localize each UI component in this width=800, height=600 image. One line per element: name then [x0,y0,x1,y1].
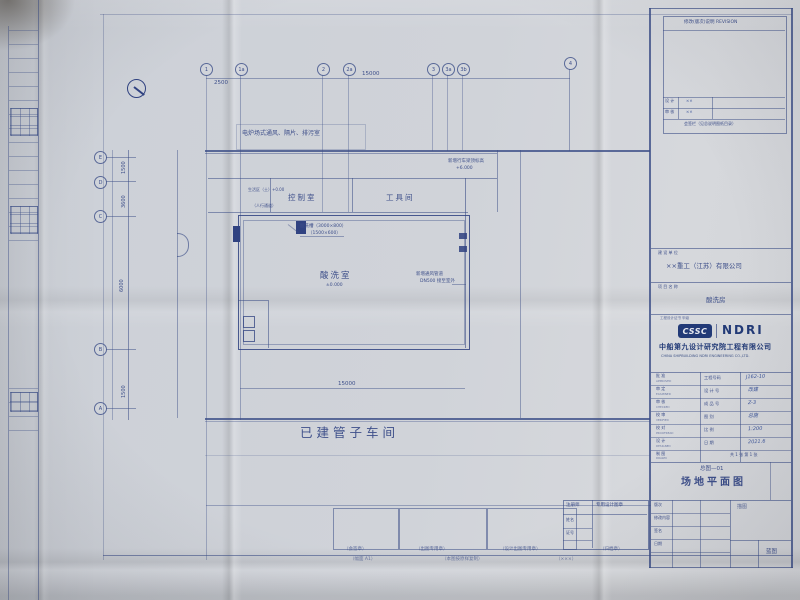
sign-row2-en: EXAMINED [656,393,671,396]
field-row6-label: 日 期 [704,441,714,446]
small-note-1: 生活区（土）+0.00 [248,188,284,193]
grid-line-3 [432,75,433,151]
field-row3-value: Z-3 [748,401,756,407]
left-panel-table-2 [10,206,38,234]
ndri-brand-text: NDRI [722,324,764,338]
corner-cell-vline [758,540,759,568]
revision-table-header: 修改(版次)说明 REVISION [684,20,737,25]
field-row1-value: J162-10 [746,375,765,381]
project-value: 酸洗房 [706,297,726,304]
revision-header-line [663,30,785,31]
project-label: 项 目 名 称 [658,285,678,290]
tank-leader-line [300,236,344,237]
existing-workshop-label: 已建管子车间 [300,426,399,440]
logo-separator [716,324,717,338]
corner-cell-lower: 蓝图 [766,549,777,555]
grid-bubble-left-5: A [94,402,107,415]
grid-bubble-top-7: 3b [457,63,470,76]
stamp-box-1 [333,508,399,550]
sign-row6-cn: 设 计 [656,439,665,444]
bottom-table-row-2 [651,526,730,527]
grid-bubble-top-2: 1a [235,63,248,76]
equipment-box-1 [243,316,255,328]
titleblock-right-border [791,8,793,568]
designer-stamp-vline [592,500,593,548]
stamp-caption-1: （会签章） [344,547,367,552]
sign-row1-en: APPROVED [656,380,671,383]
designer-stamp-h2: 专用设计图章 [596,503,623,508]
sheet-left-inner-border [103,14,104,560]
title-box-vline [770,462,771,500]
stamp-box-2 [399,508,487,550]
sheet-top-border [100,14,792,15]
grid-bubble-left-3: C [94,210,107,223]
sign-row-line-2 [651,398,791,399]
sheet-count-note: 共 1 张 第 1 张 [730,453,757,458]
tank-note-line1: 酸洗槽（3000×800） [300,224,346,229]
grid-bubble-left-4: B [94,343,107,356]
left-panel-border-inner [38,0,39,600]
dim-tick-2 [106,181,136,182]
partition-left-col [268,300,269,348]
sign-row5-cn: 校 对 [656,426,665,431]
left-panel-table-1 [10,108,38,136]
door-arc [177,233,189,257]
sign-row3-en: CHECKED [656,406,670,409]
drawing-title: 场地平面图 [681,477,746,489]
sign-row2-cn: 审 定 [656,387,665,392]
dim-chain-left-outer [112,150,113,420]
sign-row-line-6 [651,450,791,451]
revision-table [663,16,787,134]
corner-cell-upper: 描图 [737,505,747,511]
field-row6-value: 2021.6 [748,440,766,446]
workshop-wall-top-inner [205,153,497,154]
owner-value: ××重工（江苏）有限公司 [666,263,742,270]
corner-cell-line [730,540,791,541]
workshop-wall-bottom [205,418,650,420]
cssc-badge: CSSC [678,324,712,338]
room-label-main-elev: ±0.000 [326,283,343,288]
field-row4-value: 总施 [748,414,758,420]
revision-row-line-2 [663,108,785,109]
faint-lower-line [205,455,650,456]
bottom-table-label-1: 版次 [654,503,662,508]
grid-bubble-left-1: E [94,151,107,164]
cssc-badge-text: CSSC [683,327,708,336]
sign-row-line-4 [651,424,791,425]
field-row5-value: 1:200 [748,427,763,433]
sign-row-line-3 [651,411,791,412]
sign-table-top-line [651,372,791,373]
stamp-caption-3: （设计出图专用章） [500,547,541,552]
sign-row-line-1 [651,385,791,386]
right-grid-line [520,150,521,418]
workshop-wall-bottom-inner [205,421,650,422]
designer-stamp-row2 [563,540,592,541]
right-note-leader [452,284,466,285]
sign-row3-cn: 审 核 [656,400,665,405]
bottom-table-label-2: 修改内容 [654,516,670,521]
drawing-subtitle: 总图—01 [700,466,724,472]
titleblock-divider-left [649,8,651,568]
blueprint-photo: 1 1a 2 2a 3 3a 3b 4 2500 15000 电炉场式通风、隔片… [0,0,800,600]
dim-line-top [206,78,570,79]
stamp-caption-2: （出图专用章） [416,547,448,552]
cert-text: 工程设计证书 甲级 [660,316,689,320]
room-label-control: 控制室 [288,194,317,203]
bottom-table-row-4 [651,552,730,553]
bottom-table-row-1 [651,513,730,514]
designer-stamp-r2: 证号 [566,531,574,536]
company-name-cn: 中船第九设计研究院工程有限公司 [659,343,772,351]
grid-bubble-left-2: D [94,176,107,189]
revision-row2-label: 审 核 [665,110,674,115]
bottom-table-vline-1 [672,500,673,568]
right-note-line1: 新增通风管道 [416,272,443,277]
field-row1-label: 工程号码 [704,376,721,381]
field-row4-label: 图 别 [704,415,714,420]
dim-chain-left-inner [128,150,129,420]
grid-line-1 [206,75,207,560]
project-box-top-line [651,282,791,283]
dim-top-value-2: 15000 [362,71,380,77]
designer-stamp-h1: 注册师 [566,503,580,508]
sign-row4-cn: 校 审 [656,413,665,418]
left-wall-line [177,150,178,418]
dim-bottom-value: 15000 [338,381,356,387]
grid-bubble-top-3: 2 [317,63,330,76]
workshop-wall-top [205,150,650,152]
edge-caption-1: （幅面 A1） [350,557,375,562]
edge-caption-3: （×××） [556,557,576,562]
revision-row1-label: 设 计 [665,99,674,104]
grid-bubble-top-6: 3a [442,63,455,76]
titleblock-top-border [649,8,793,9]
sign-row7-en: DRAWN [656,457,667,460]
designer-stamp-row1 [563,528,592,529]
dim-top-value-1: 2500 [214,80,228,86]
partition-left-col-top [238,300,268,301]
bottom-table-vline-3 [730,500,731,568]
drawing-sheet: 1 1a 2 2a 3 3a 3b 4 2500 15000 电炉场式通风、隔片… [0,0,800,600]
column-block-2 [233,226,240,242]
room-label-main: 酸洗室 [320,272,352,282]
revision-row1-value: ×× [686,99,693,104]
revision-col-line-2 [712,97,713,119]
grid-line-3b [462,75,463,151]
sign-row6-en: DESIGNED [656,445,671,448]
dim-tick-4 [106,349,136,350]
top-note-text: 电炉场式通风、隔片、排污室 [242,131,320,138]
field-row2-label: 设 计 号 [704,389,719,394]
owner-label: 建 设 单 位 [658,251,678,256]
bottom-table-vline-2 [700,500,701,568]
room-label-tool: 工具间 [386,194,415,203]
crane-note-line2: +6.000 [456,166,473,171]
revision-row2-value: ×× [686,110,693,115]
grid-bubble-top-5: 3 [427,63,440,76]
column-block-3 [459,233,467,239]
logo-box-top-line [651,314,791,315]
field-row3-label: 成 品 号 [704,402,719,407]
revision-row-line-1 [663,97,785,98]
dim-left-value-2: 3600 [122,195,128,208]
sign-row5-en: PROOFREAD [656,432,673,435]
dim-left-value-3: 6000 [120,279,126,292]
grid-bubble-top-8: 4 [564,57,577,70]
field-row2-value: 改建 [748,388,758,394]
small-note-2: （人行通道） [252,204,276,209]
dim-line-bottom [240,388,465,389]
dim-tick-5 [106,408,136,409]
grid-line-4 [569,69,570,151]
grid-line-3a [447,75,448,151]
rooms-bottom-line [208,212,468,213]
right-note-line2: DN500 接至室外 [420,279,455,284]
grid-bubble-top-4: 2a [343,63,356,76]
owner-box-top-line [651,248,791,249]
sign-row-line-5 [651,437,791,438]
company-name-en: CHINA SHIPBUILDING NDRI ENGINEERING CO.,… [661,354,749,358]
crane-note-line1: 新增行车梁顶标高 [448,159,484,164]
titleblock-bottom-border [649,567,793,568]
sign-row4-en: VERIFIED [656,419,669,422]
designer-stamp-r1: 姓名 [566,518,574,523]
bottom-table-label-4: 日期 [654,542,662,547]
dim-tick-3 [106,216,136,217]
dim-left-value-4: 1500 [122,385,128,398]
edge-caption-2: （本图按原样复制） [442,557,483,562]
band-right-wall [497,150,498,212]
field-row5-label: 比 例 [704,428,714,433]
equipment-box-2 [243,330,255,342]
rooms-wall-b [352,178,353,212]
dim-left-value-1: 1500 [122,161,128,174]
revision-table-footer: 会签栏（见总说明图纸目录） [684,122,736,127]
bottom-table-label-3: 签名 [654,529,662,534]
left-panel-table-3 [10,392,38,412]
column-block-4 [459,246,467,252]
designer-stamp-header-line [563,514,647,515]
sign-row1-cn: 批 准 [656,374,665,379]
revision-row-line-3 [663,119,785,120]
bottom-table-row-3 [651,539,730,540]
dim-tick-1 [106,157,136,158]
revision-col-line-1 [678,97,679,119]
